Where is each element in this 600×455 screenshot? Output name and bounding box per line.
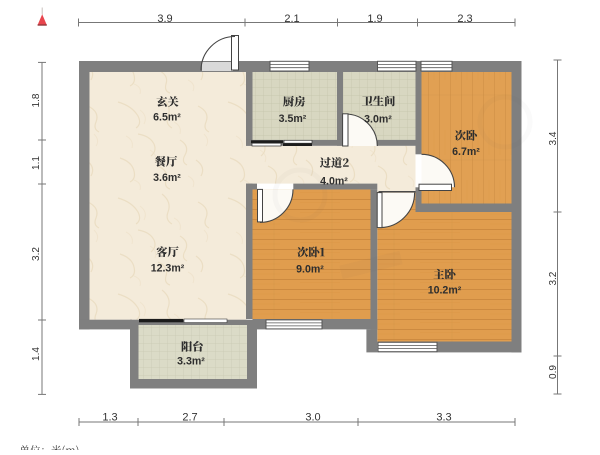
svg-text:3.6m²: 3.6m² — [153, 172, 181, 184]
svg-text:3.5m²: 3.5m² — [279, 113, 307, 125]
svg-text:9.0m²: 9.0m² — [296, 264, 324, 276]
svg-text:3.4: 3.4 — [548, 131, 559, 145]
svg-text:3.0: 3.0 — [305, 411, 320, 423]
svg-text:2.3: 2.3 — [457, 13, 472, 25]
svg-text:6.5m²: 6.5m² — [153, 112, 181, 124]
svg-text:12.3m²: 12.3m² — [151, 263, 185, 275]
svg-text:3.3m²: 3.3m² — [177, 356, 205, 368]
svg-text:1.9: 1.9 — [367, 13, 382, 25]
svg-text:1.8: 1.8 — [31, 93, 42, 107]
svg-text:3.9: 3.9 — [157, 13, 172, 25]
svg-text:3.3: 3.3 — [436, 411, 451, 423]
svg-text:0.9: 0.9 — [548, 365, 559, 379]
svg-text:1.1: 1.1 — [31, 156, 42, 170]
svg-text:1.3: 1.3 — [102, 411, 117, 423]
svg-text:6.7m²: 6.7m² — [452, 146, 480, 158]
svg-text:2.1: 2.1 — [284, 13, 299, 25]
svg-text:2.7: 2.7 — [182, 411, 197, 423]
svg-text:3.2: 3.2 — [31, 247, 42, 261]
svg-text:1.4: 1.4 — [31, 347, 42, 361]
svg-text:3.2: 3.2 — [548, 271, 559, 285]
svg-text:10.2m²: 10.2m² — [428, 285, 462, 297]
svg-text:3.0m²: 3.0m² — [364, 113, 392, 125]
